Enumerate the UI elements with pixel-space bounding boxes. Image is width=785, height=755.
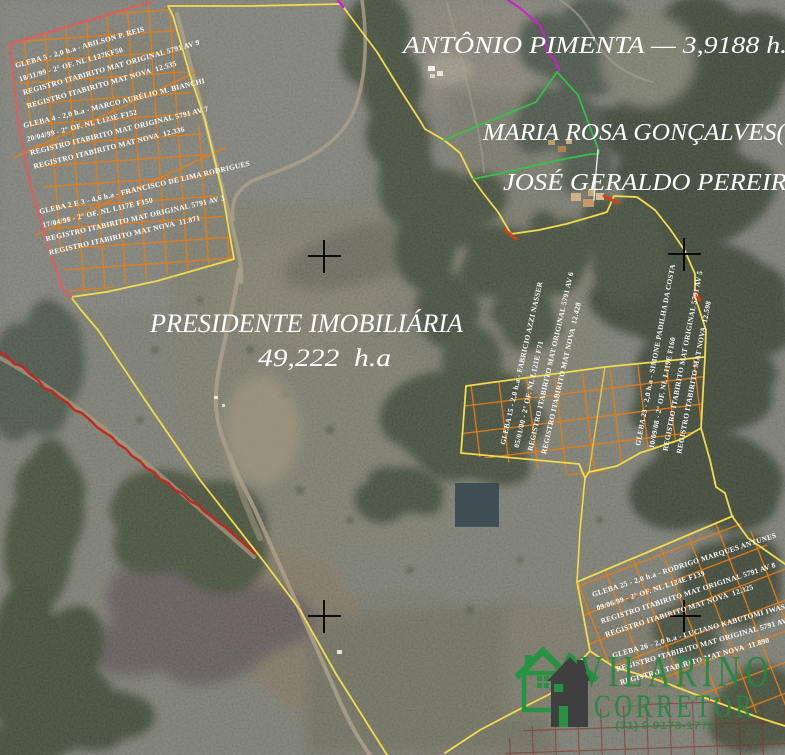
svg-text:JOSÉ GERALDO PEREIRA: JOSÉ GERALDO PEREIRA [503, 170, 785, 196]
svg-text:(31) 9 9173-1770: (31) 9 9173-1770 [615, 720, 715, 732]
svg-text:MARIA ROSA GONÇALVES(: MARIA ROSA GONÇALVES( [482, 120, 785, 146]
svg-text:49,222 h.a: 49,222 h.a [258, 345, 391, 372]
svg-text:ANTÔNIO PIMENTA — 3,9188 h.a: ANTÔNIO PIMENTA — 3,9188 h.a [401, 32, 785, 59]
svg-text:PRESIDENTE IMOBILIÁRIA: PRESIDENTE IMOBILIÁRIA [149, 309, 463, 338]
